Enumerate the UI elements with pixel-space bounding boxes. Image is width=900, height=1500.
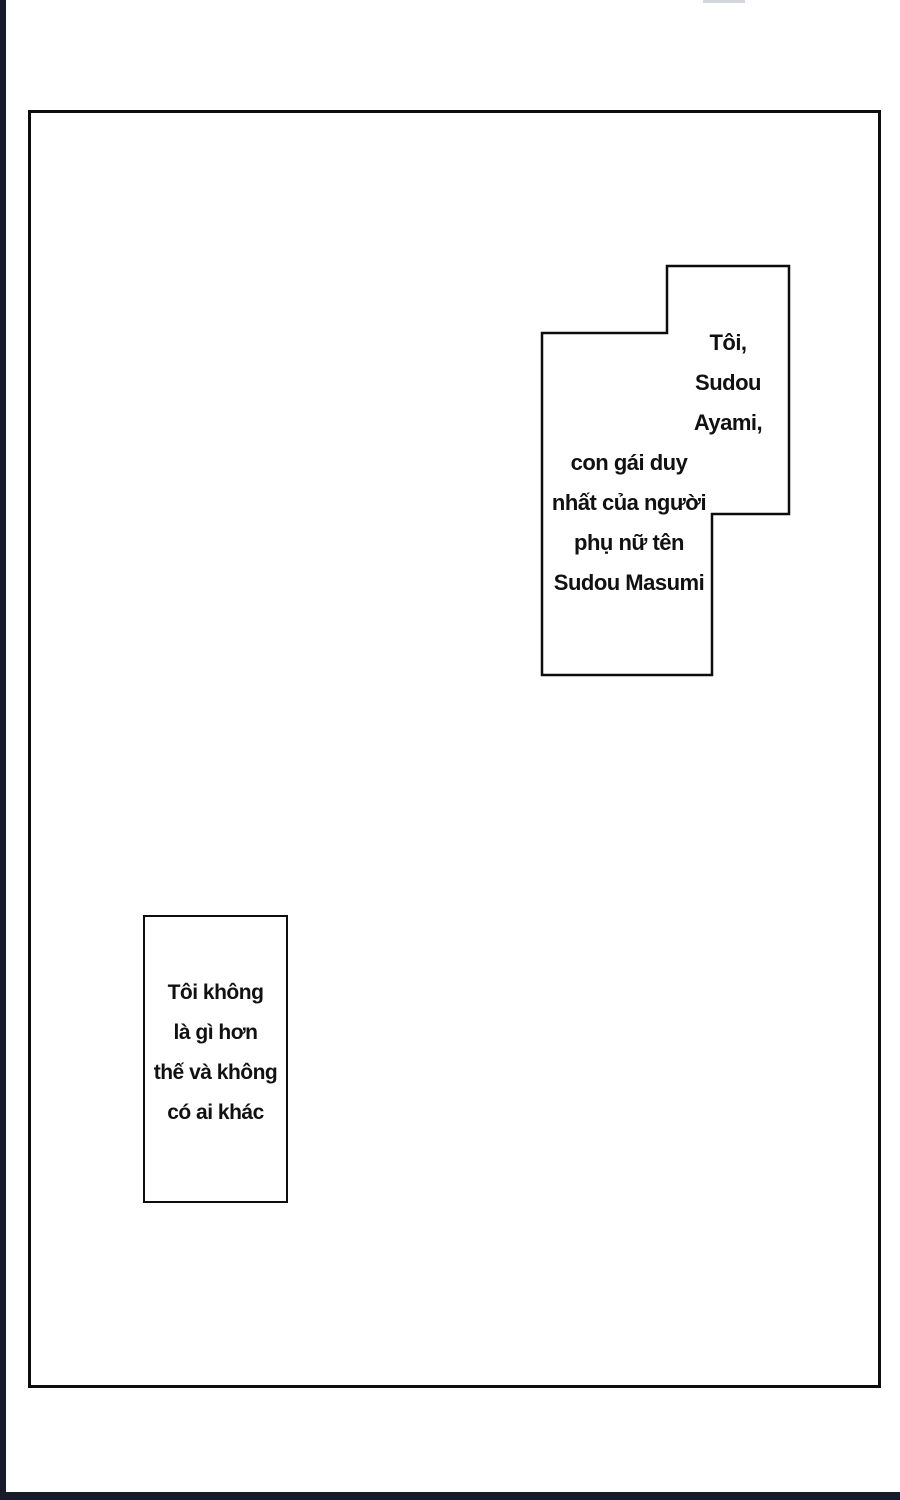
narration-line: thế và không xyxy=(145,1053,286,1093)
narration-line: Ayami, xyxy=(667,403,789,443)
page-left-edge-strip xyxy=(0,0,6,1500)
narration-line: có ai khác xyxy=(145,1093,286,1133)
narration-text-top-right-col1: Tôi, Sudou Ayami, xyxy=(667,323,789,443)
narration-line: con gái duy xyxy=(546,443,712,483)
narration-line: Tôi, xyxy=(667,323,789,363)
narration-text-top-right-col2: con gái duy nhất của người phụ nữ tên Su… xyxy=(546,443,712,603)
narration-line: là gì hơn xyxy=(145,1013,286,1053)
narration-line: nhất của người xyxy=(546,483,712,523)
narration-line: Sudou Masumi xyxy=(546,563,712,603)
narration-line: phụ nữ tên xyxy=(546,523,712,563)
manga-page: Tôi, Sudou Ayami, con gái duy nhất của n… xyxy=(0,0,900,1500)
narration-line: Tôi không xyxy=(145,973,286,1013)
scan-artifact-mark xyxy=(703,0,745,3)
page-bottom-edge-strip xyxy=(0,1492,900,1500)
narration-line: Sudou xyxy=(667,363,789,403)
narration-box-bottom-left: Tôi không là gì hơn thế và không có ai k… xyxy=(143,915,288,1203)
narration-text-bottom-left: Tôi không là gì hơn thế và không có ai k… xyxy=(145,917,286,1133)
